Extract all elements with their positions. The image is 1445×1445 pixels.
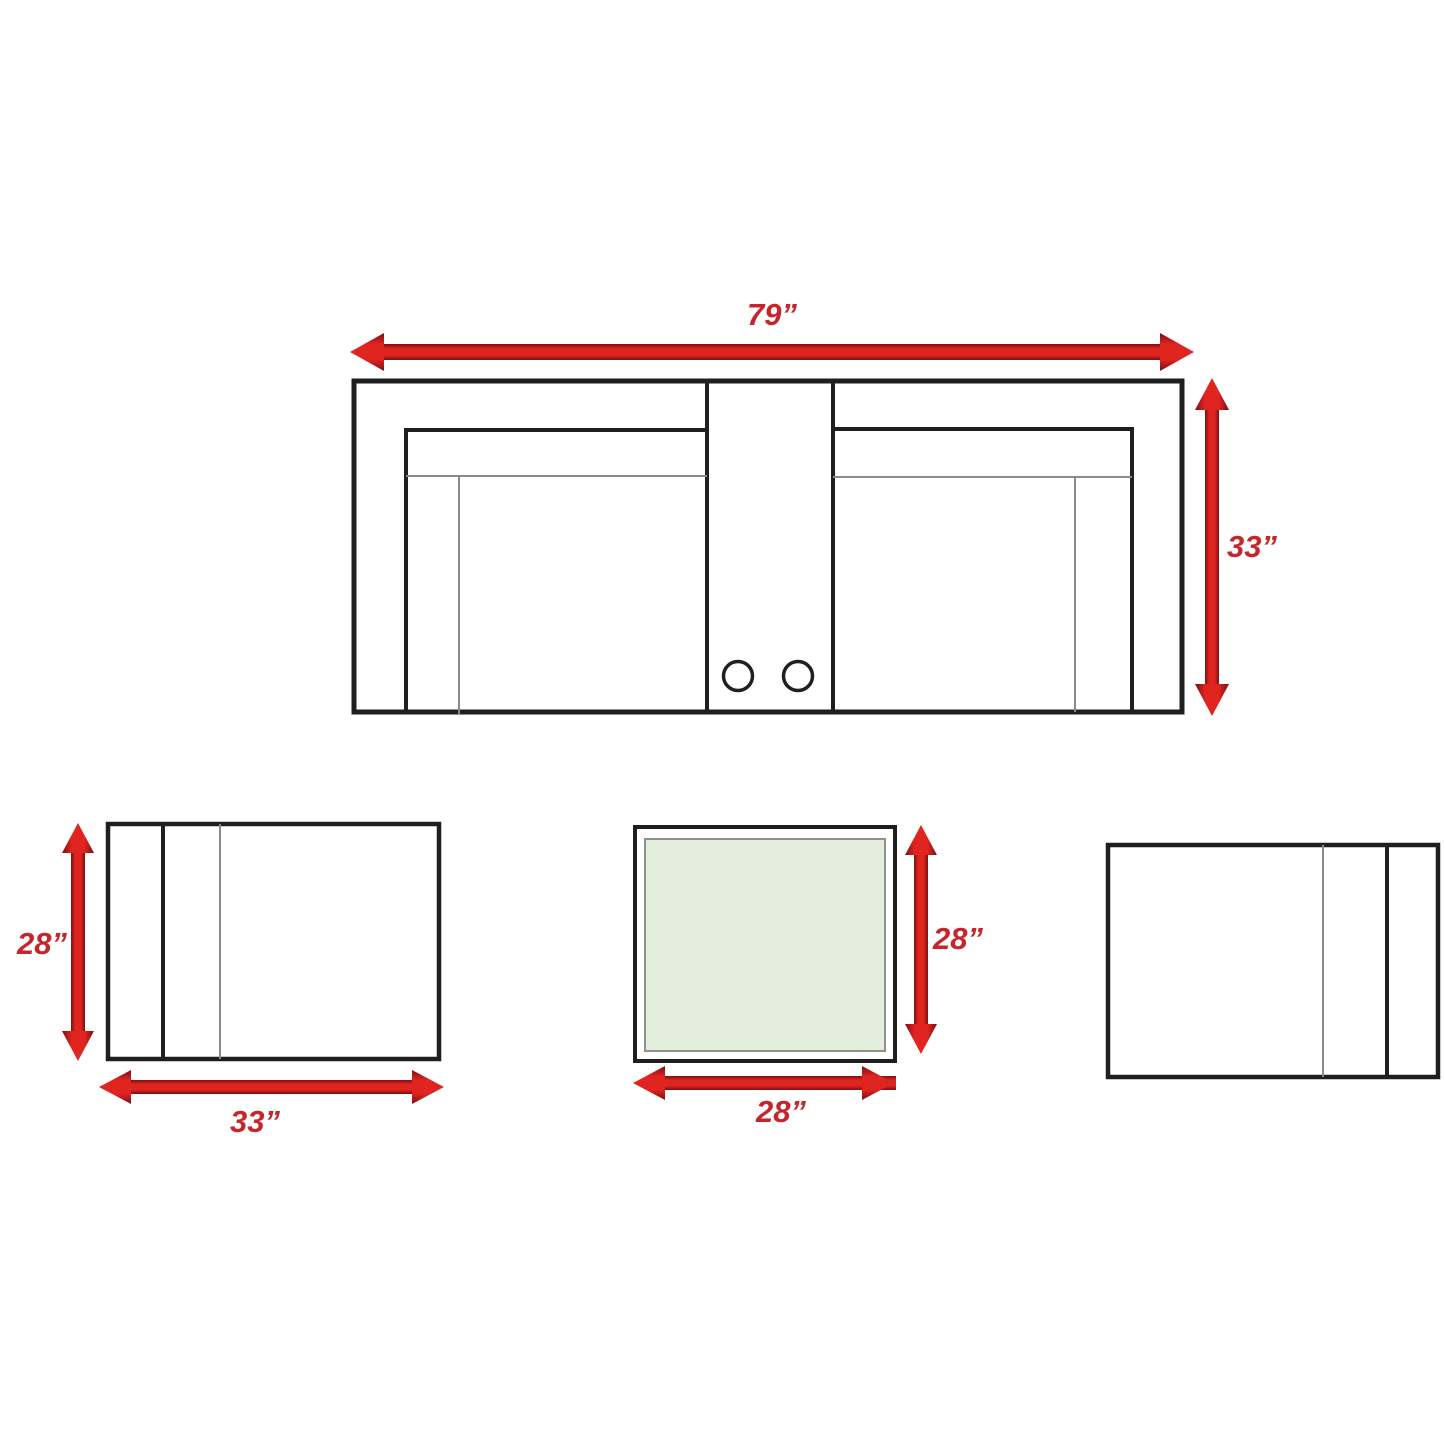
- sofa-top-view: [354, 381, 1182, 714]
- sofa-left-seat-outline: [406, 430, 707, 712]
- arrowhead-up-icon: [1195, 378, 1229, 410]
- armchair-left-width-arrow: [99, 1070, 444, 1104]
- cupholder-left-icon: [724, 662, 753, 691]
- table-height-label: 28”: [932, 921, 983, 956]
- arrowhead-left-icon: [633, 1066, 665, 1100]
- sofa-height-label: 33”: [1227, 529, 1277, 564]
- arrowhead-up-icon: [62, 823, 94, 853]
- diagram-svg: 79” 33” 28” 33”: [0, 0, 1445, 1445]
- arrow-shaft: [129, 1080, 414, 1094]
- arrowhead-left-icon: [99, 1070, 131, 1104]
- armchair-right-top-view: [1108, 845, 1438, 1077]
- armchair-left-width-label: 33”: [230, 1104, 280, 1139]
- cupholder-right-icon: [784, 662, 813, 691]
- arrowhead-up-icon: [905, 825, 937, 855]
- armchair-left-top-view: [108, 824, 439, 1059]
- arrowhead-right-icon: [862, 1066, 894, 1100]
- arrowhead-right-icon: [1160, 333, 1194, 371]
- furniture-dimensions-diagram: 79” 33” 28” 33”: [0, 0, 1445, 1445]
- arrow-shaft: [663, 1076, 896, 1090]
- arrowhead-down-icon: [1195, 684, 1229, 716]
- sofa-width-arrow: [350, 333, 1194, 371]
- arrowhead-right-icon: [412, 1070, 444, 1104]
- sofa-height-arrow: [1195, 378, 1229, 716]
- arrow-shaft: [71, 851, 85, 1033]
- sofa-right-seat-outline: [833, 429, 1132, 712]
- table-top-view: [635, 827, 895, 1061]
- table-glass-top: [645, 839, 885, 1051]
- armchair-left-outline: [108, 824, 439, 1059]
- arrowhead-left-icon: [350, 333, 384, 371]
- armchair-left-height-label: 28”: [16, 926, 67, 961]
- arrow-shaft: [914, 853, 928, 1026]
- table-width-label: 28”: [755, 1094, 806, 1129]
- sofa-width-label: 79”: [747, 297, 797, 332]
- arrow-shaft: [1205, 408, 1219, 686]
- arrowhead-down-icon: [905, 1024, 937, 1054]
- arrowhead-down-icon: [62, 1031, 94, 1061]
- arrow-shaft: [382, 344, 1162, 360]
